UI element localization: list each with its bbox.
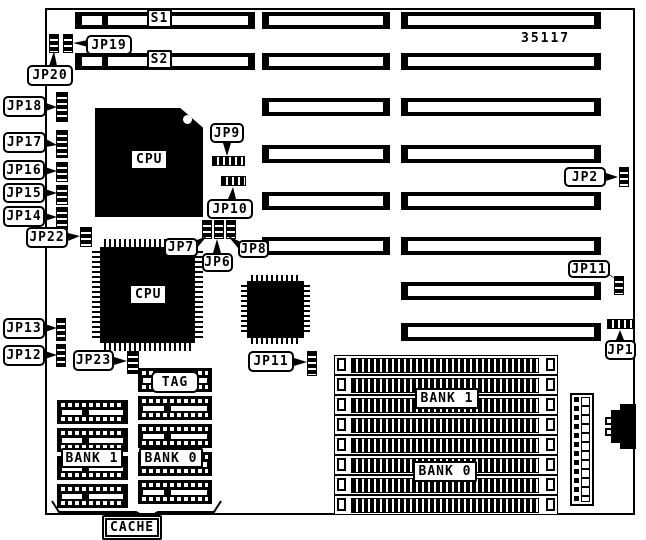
expansion-slot [401, 145, 601, 163]
jp17-label: JP17 [3, 132, 46, 153]
jp9-jumper [212, 156, 245, 166]
jp14-label: JP14 [3, 206, 45, 227]
simm-socket [334, 435, 558, 455]
expansion-slot [401, 237, 601, 255]
jp2-jumper [619, 167, 629, 187]
cache-label-text: CACHE [105, 518, 159, 537]
jp16-label: JP16 [3, 160, 45, 180]
power-connector [570, 393, 594, 506]
jp7-label: JP7 [164, 238, 198, 257]
expansion-slot [401, 282, 601, 300]
jp15-label: JP15 [3, 183, 45, 203]
jp12-label: JP12 [3, 345, 45, 366]
jp22-jumper [80, 227, 92, 247]
motherboard-diagram: CPU CPU [0, 0, 646, 540]
jp18-label: JP18 [3, 96, 46, 117]
keyboard-connector [611, 410, 621, 443]
jp1-label: JP1 [605, 340, 636, 360]
jp11-right-jumper [614, 276, 624, 295]
jp17-jumper [56, 130, 68, 158]
jp20-label: JP20 [27, 65, 73, 86]
cache-chip [138, 480, 212, 504]
qfp-pins [104, 343, 191, 351]
keyboard-connector-pin [605, 428, 613, 436]
simm-socket [334, 415, 558, 435]
jp11-right-label: JP11 [568, 260, 610, 278]
cpu2-label: CPU [131, 286, 165, 303]
jp6-label: JP6 [202, 253, 233, 272]
expansion-slot [262, 192, 390, 210]
simm-bank1-label: BANK 1 [415, 388, 479, 409]
expansion-slot [401, 323, 601, 341]
keyboard-connector [620, 404, 636, 449]
qfp-pins [92, 251, 100, 339]
cache-chip [138, 424, 212, 448]
expansion-slot [262, 53, 390, 70]
jp6-jumper [214, 220, 224, 239]
cache-bank0-label: BANK 0 [139, 448, 203, 468]
expansion-slot [262, 98, 390, 116]
expansion-slot [262, 145, 390, 163]
jp2-label: JP2 [564, 167, 606, 187]
slot-s1-label: S1 [147, 9, 172, 28]
simm-socket [334, 495, 558, 515]
jp12-jumper [56, 344, 66, 367]
jp13-jumper [56, 318, 66, 341]
cache-chip [57, 484, 128, 508]
keyboard-connector-pin [605, 417, 613, 425]
simm-bank0-label: BANK 0 [413, 461, 477, 482]
jp10-label: JP10 [207, 199, 253, 219]
jp16-jumper [56, 162, 68, 182]
jp8-label: JP8 [238, 240, 269, 258]
jp20-jumper [49, 34, 59, 53]
jp11-left-label: JP11 [248, 351, 294, 372]
jp23-label: JP23 [73, 350, 114, 371]
cache-label: CACHE [102, 515, 162, 540]
expansion-slot [262, 237, 390, 255]
expansion-slot [401, 192, 601, 210]
expansion-slot [401, 98, 601, 116]
jp13-label: JP13 [3, 318, 45, 339]
jp7-jumper [202, 220, 212, 239]
qfp-pins [251, 338, 300, 344]
jp22-label: JP22 [26, 227, 68, 248]
jp9-label: JP9 [210, 123, 244, 143]
jp15-jumper [56, 185, 68, 205]
expansion-slot [401, 12, 601, 29]
part-number: 35117 [521, 31, 570, 46]
expansion-slot [262, 12, 390, 29]
cache-chip [138, 396, 212, 420]
cpu1-label: CPU [132, 151, 166, 168]
jp1-jumper [607, 319, 635, 329]
tag-label: TAG [151, 371, 199, 393]
simm-socket [334, 355, 558, 375]
controller-chip [247, 281, 304, 338]
jp11-left-jumper [307, 351, 317, 376]
expansion-slot [401, 53, 601, 70]
cache-chip [57, 400, 128, 424]
jp18-jumper [56, 92, 68, 122]
jp19-jumper [63, 34, 73, 53]
jp19-label: JP19 [86, 35, 132, 55]
jp10-jumper [221, 176, 246, 186]
cache-bank1-label: BANK 1 [61, 448, 123, 468]
qfp-pins [304, 285, 310, 334]
slot-s2-label: S2 [147, 50, 172, 69]
jp8-jumper [226, 220, 236, 239]
